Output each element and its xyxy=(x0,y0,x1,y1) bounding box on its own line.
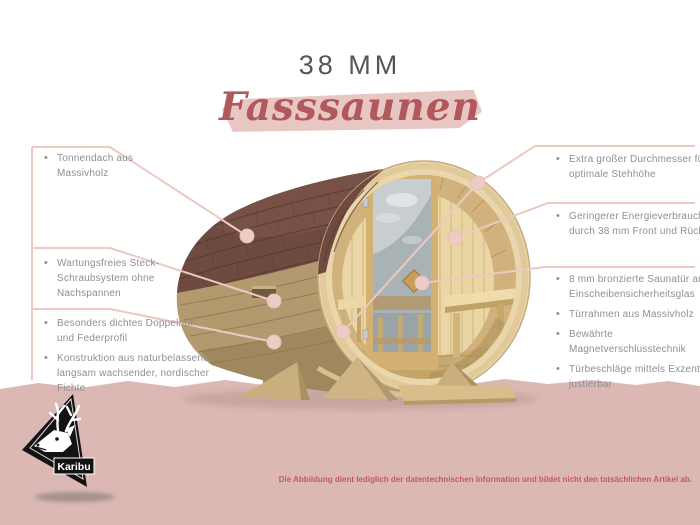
callout-roof: Tonnendach aus Massivholz xyxy=(44,151,204,186)
glass-sill xyxy=(373,338,431,344)
page-title: Fasssaunen xyxy=(0,84,700,130)
callout-dot-diameter-top xyxy=(471,176,485,190)
callout-list: Besonders dichtes Doppelnut- und Federpr… xyxy=(44,316,224,396)
callout-list: Extra großer Durchmesser für eine optima… xyxy=(556,152,700,182)
callout-item: Türbeschläge mittels Exzenter justierbar xyxy=(556,362,700,392)
wall-vent-top xyxy=(252,286,276,289)
callout-screw-system: Wartungsfreies Steck- Schraubsystem ohne… xyxy=(44,256,219,306)
callout-dot-energy xyxy=(448,231,462,245)
logo-shadow xyxy=(35,492,115,502)
sauna-glass-door xyxy=(362,172,442,380)
glass-cloud xyxy=(386,193,418,207)
callout-dot-profile xyxy=(267,335,281,349)
callout-dot-wall xyxy=(267,294,281,308)
callout-item: 8 mm bronzierte Saunatür aus Einscheiben… xyxy=(556,272,700,302)
callout-item: Bewährte Magnetverschlusstechnik xyxy=(556,327,700,357)
callout-item: Türrahmen aus Massivholz xyxy=(556,307,700,322)
callout-dot-roof xyxy=(240,229,254,243)
disclaimer-text: Die Abbildung dient lediglich der datent… xyxy=(262,475,692,484)
callout-diameter: Extra großer Durchmesser für eine optima… xyxy=(556,152,700,187)
callout-energy: Geringerer Energieverbrauch durch 38 mm … xyxy=(556,209,700,244)
glass-bench-reflection xyxy=(373,296,431,310)
callout-item: Tonnendach aus Massivholz xyxy=(44,151,204,181)
glass-cloud xyxy=(376,213,400,223)
callout-list: Tonnendach aus Massivholz xyxy=(44,151,204,181)
callout-wood-profile: Besonders dichtes Doppelnut- und Federpr… xyxy=(44,316,224,401)
callout-door-features: 8 mm bronzierte Saunatür aus Einscheiben… xyxy=(556,272,700,397)
callout-item: Besonders dichtes Doppelnut- und Federpr… xyxy=(44,316,224,346)
infographic-page: Karibu 38 MM Fasssaunen Tonnendach aus M… xyxy=(0,0,700,525)
callout-dot-door xyxy=(415,276,429,290)
callout-list: Geringerer Energieverbrauch durch 38 mm … xyxy=(556,209,700,239)
glass-cloud xyxy=(402,236,422,244)
logo-brand-text: Karibu xyxy=(57,461,90,473)
callout-item: Konstruktion aus naturbelassener, langsa… xyxy=(44,351,224,396)
callout-list: Wartungsfreies Steck- Schraubsystem ohne… xyxy=(44,256,219,301)
size-label: 38 MM xyxy=(0,50,700,81)
callout-dot-diameter-bottom xyxy=(336,325,350,339)
callout-item: Geringerer Energieverbrauch durch 38 mm … xyxy=(556,209,700,239)
callout-list: 8 mm bronzierte Saunatür aus Einscheiben… xyxy=(556,272,700,392)
callout-item: Extra großer Durchmesser für eine optima… xyxy=(556,152,700,182)
door-hinge xyxy=(363,330,368,339)
callout-item: Wartungsfreies Steck- Schraubsystem ohne… xyxy=(44,256,219,301)
